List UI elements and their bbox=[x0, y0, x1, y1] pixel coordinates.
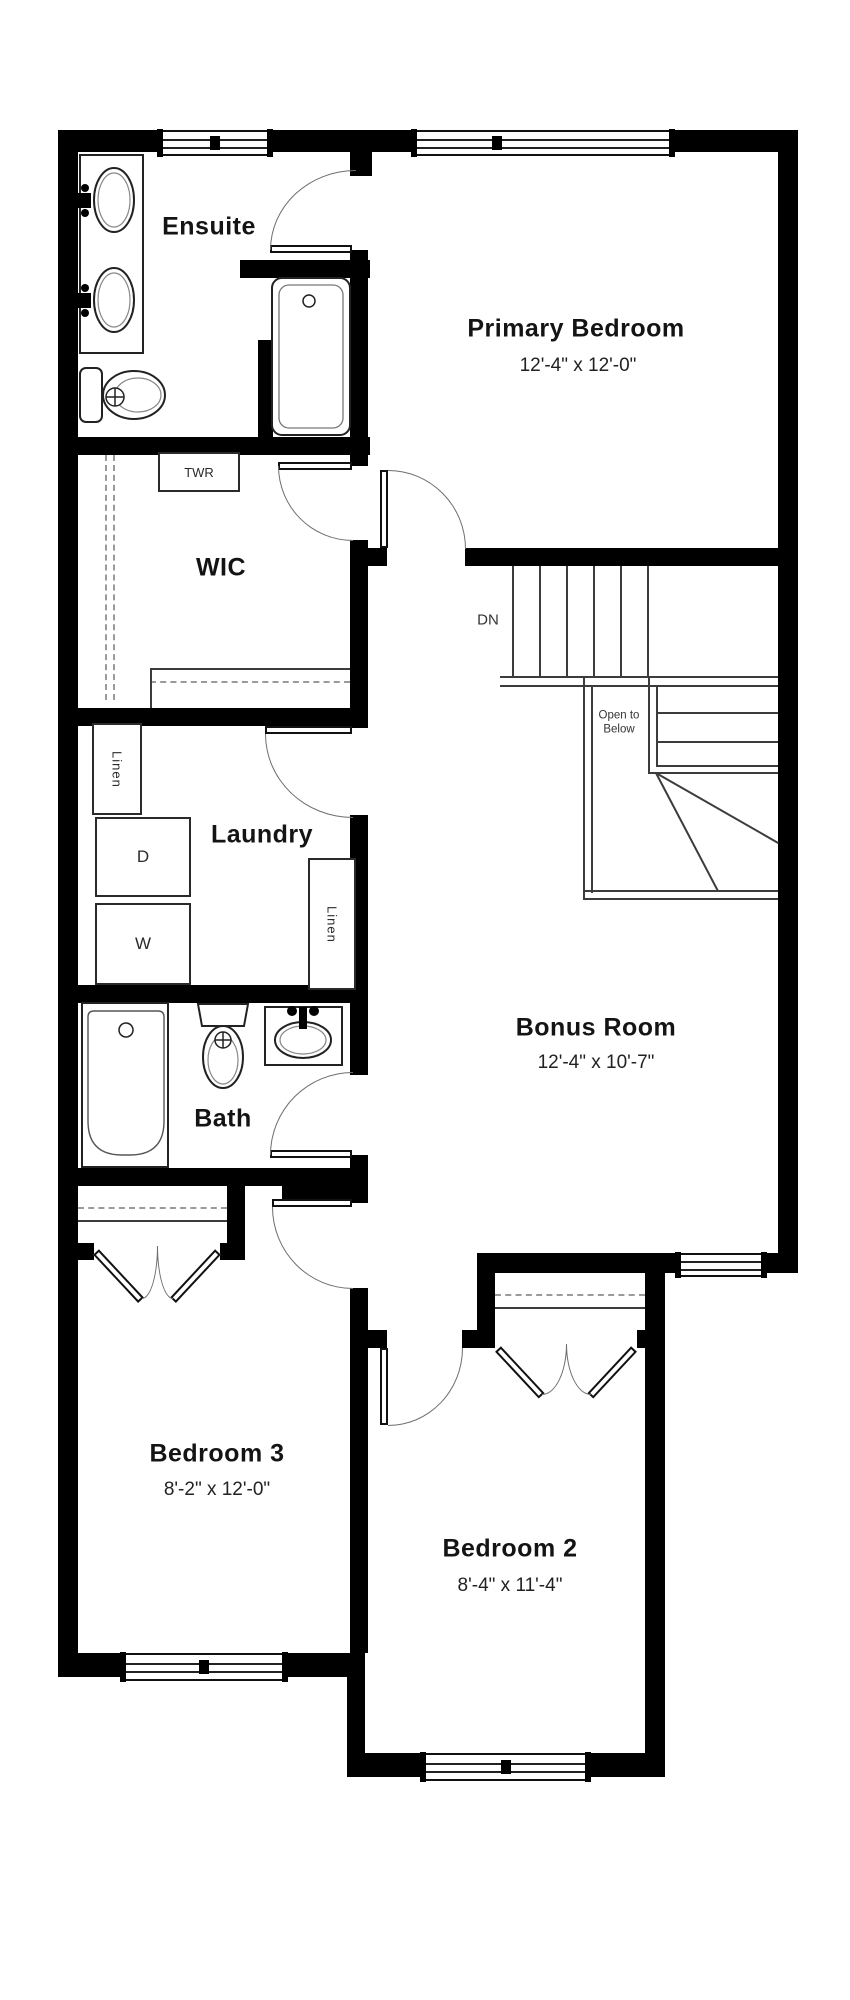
ensuite-faucet bbox=[78, 293, 91, 308]
stair-tread bbox=[539, 566, 541, 676]
stair-tread bbox=[620, 566, 622, 676]
stair-tread bbox=[647, 566, 649, 676]
stair-winder-tread bbox=[648, 772, 778, 774]
ensuite-faucet-handle bbox=[81, 209, 89, 217]
bath-faucet-handle bbox=[287, 1006, 297, 1016]
ensuite-faucet-handle bbox=[81, 309, 89, 317]
bath-faucet bbox=[299, 1007, 307, 1029]
ensuite-faucet-handle bbox=[81, 284, 89, 292]
bedroom2-closet-shelf bbox=[495, 1307, 645, 1309]
room-dims-bedroom2: 8'-4" x 11'-4" bbox=[458, 1575, 563, 1597]
stairwell-rail bbox=[583, 676, 585, 900]
stairwell-rail bbox=[656, 685, 658, 767]
bath-faucet-handle bbox=[309, 1006, 319, 1016]
bath-toilet-tank bbox=[198, 1004, 248, 1026]
room-label-primary-bedroom: Primary Bedroom bbox=[467, 315, 684, 344]
room-label-bonus-room: Bonus Room bbox=[516, 1014, 677, 1043]
stairwell-bottom-edge bbox=[583, 898, 778, 900]
room-label-bedroom2: Bedroom 2 bbox=[442, 1535, 577, 1564]
floor-plan: TWR Linen Linen D W Ensuite Primary Bedr… bbox=[0, 0, 850, 2000]
stair-tread bbox=[566, 566, 568, 676]
room-label-ensuite: Ensuite bbox=[162, 213, 256, 242]
stair-winder-tread bbox=[656, 741, 778, 743]
stair-tread bbox=[593, 566, 595, 676]
ensuite-faucet bbox=[78, 193, 91, 208]
stair-landing-edge bbox=[500, 685, 778, 687]
ensuite-faucet-handle bbox=[81, 184, 89, 192]
door-primary-bedroom bbox=[380, 470, 388, 548]
stairs-down-label: DN bbox=[477, 612, 499, 629]
fixtures-layer bbox=[0, 0, 850, 2000]
door-laundry bbox=[265, 726, 352, 734]
ensuite-toilet-tank bbox=[80, 368, 102, 422]
room-label-bath: Bath bbox=[194, 1105, 252, 1134]
room-label-bedroom3: Bedroom 3 bbox=[149, 1440, 284, 1469]
bedroom3-closet-shelf bbox=[78, 1220, 227, 1222]
wic-shelf-edge bbox=[150, 668, 350, 670]
stair-winder-tread bbox=[656, 712, 778, 714]
room-label-laundry: Laundry bbox=[211, 821, 313, 850]
room-dims-bonus-room: 12'-4" x 10'-7" bbox=[538, 1052, 655, 1074]
stair-winder-tread bbox=[656, 765, 778, 767]
room-label-wic: WIC bbox=[196, 554, 246, 583]
ensuite-sink bbox=[94, 268, 134, 332]
stair-landing-edge bbox=[500, 676, 778, 678]
stair-tread bbox=[512, 566, 514, 676]
room-dims-primary-bedroom: 12'-4" x 12'-0" bbox=[520, 355, 637, 377]
stairwell-bottom-edge bbox=[583, 890, 778, 892]
bath-tub bbox=[82, 1003, 168, 1167]
door-bedroom3 bbox=[272, 1199, 352, 1207]
shower-pan bbox=[272, 278, 350, 435]
open-to-below-label: Open to Below bbox=[587, 709, 651, 738]
door-bedroom2 bbox=[380, 1348, 388, 1425]
ensuite-sink bbox=[94, 168, 134, 232]
room-dims-bedroom3: 8'-2" x 12'-0" bbox=[164, 1479, 270, 1501]
wic-shelf-end bbox=[150, 668, 152, 708]
